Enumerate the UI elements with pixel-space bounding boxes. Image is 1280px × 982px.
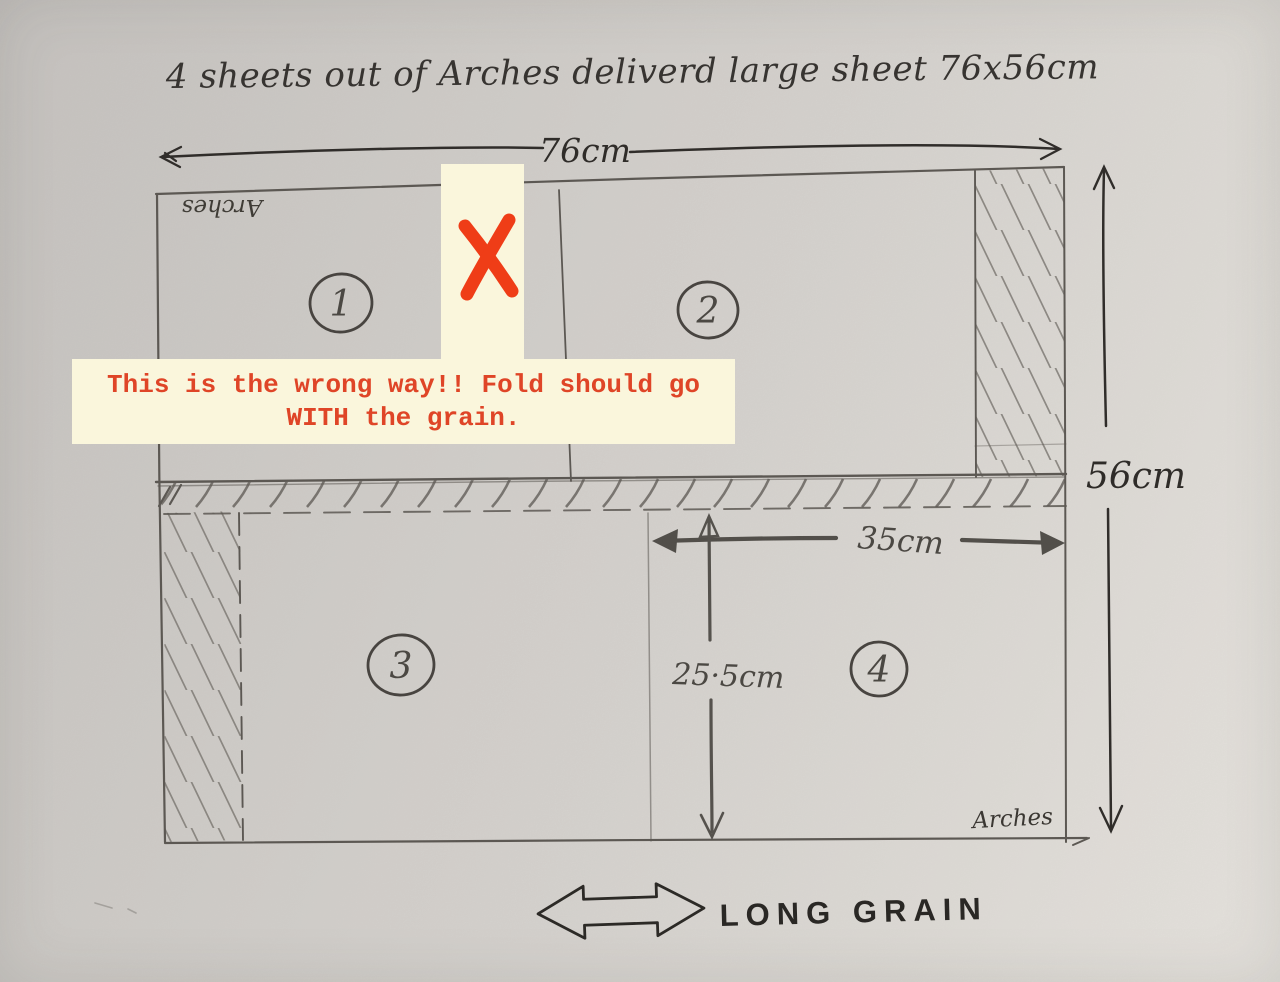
cutting-diagram: 4 sheets out of Arches deliverd large sh… (0, 0, 1280, 982)
photo-of-sketch: 4 sheets out of Arches deliverd large sh… (0, 0, 1280, 982)
x-mark-icon (441, 164, 524, 362)
annotation-text-line1: This is the wrong way!! Fold should go (107, 369, 700, 401)
paper-grain-texture (0, 0, 1280, 982)
annotation-text-line2: WITH the grain. (286, 402, 520, 434)
annotation-note-box: This is the wrong way!! Fold should go W… (72, 359, 735, 444)
annotation-highlight-strip (441, 164, 524, 362)
